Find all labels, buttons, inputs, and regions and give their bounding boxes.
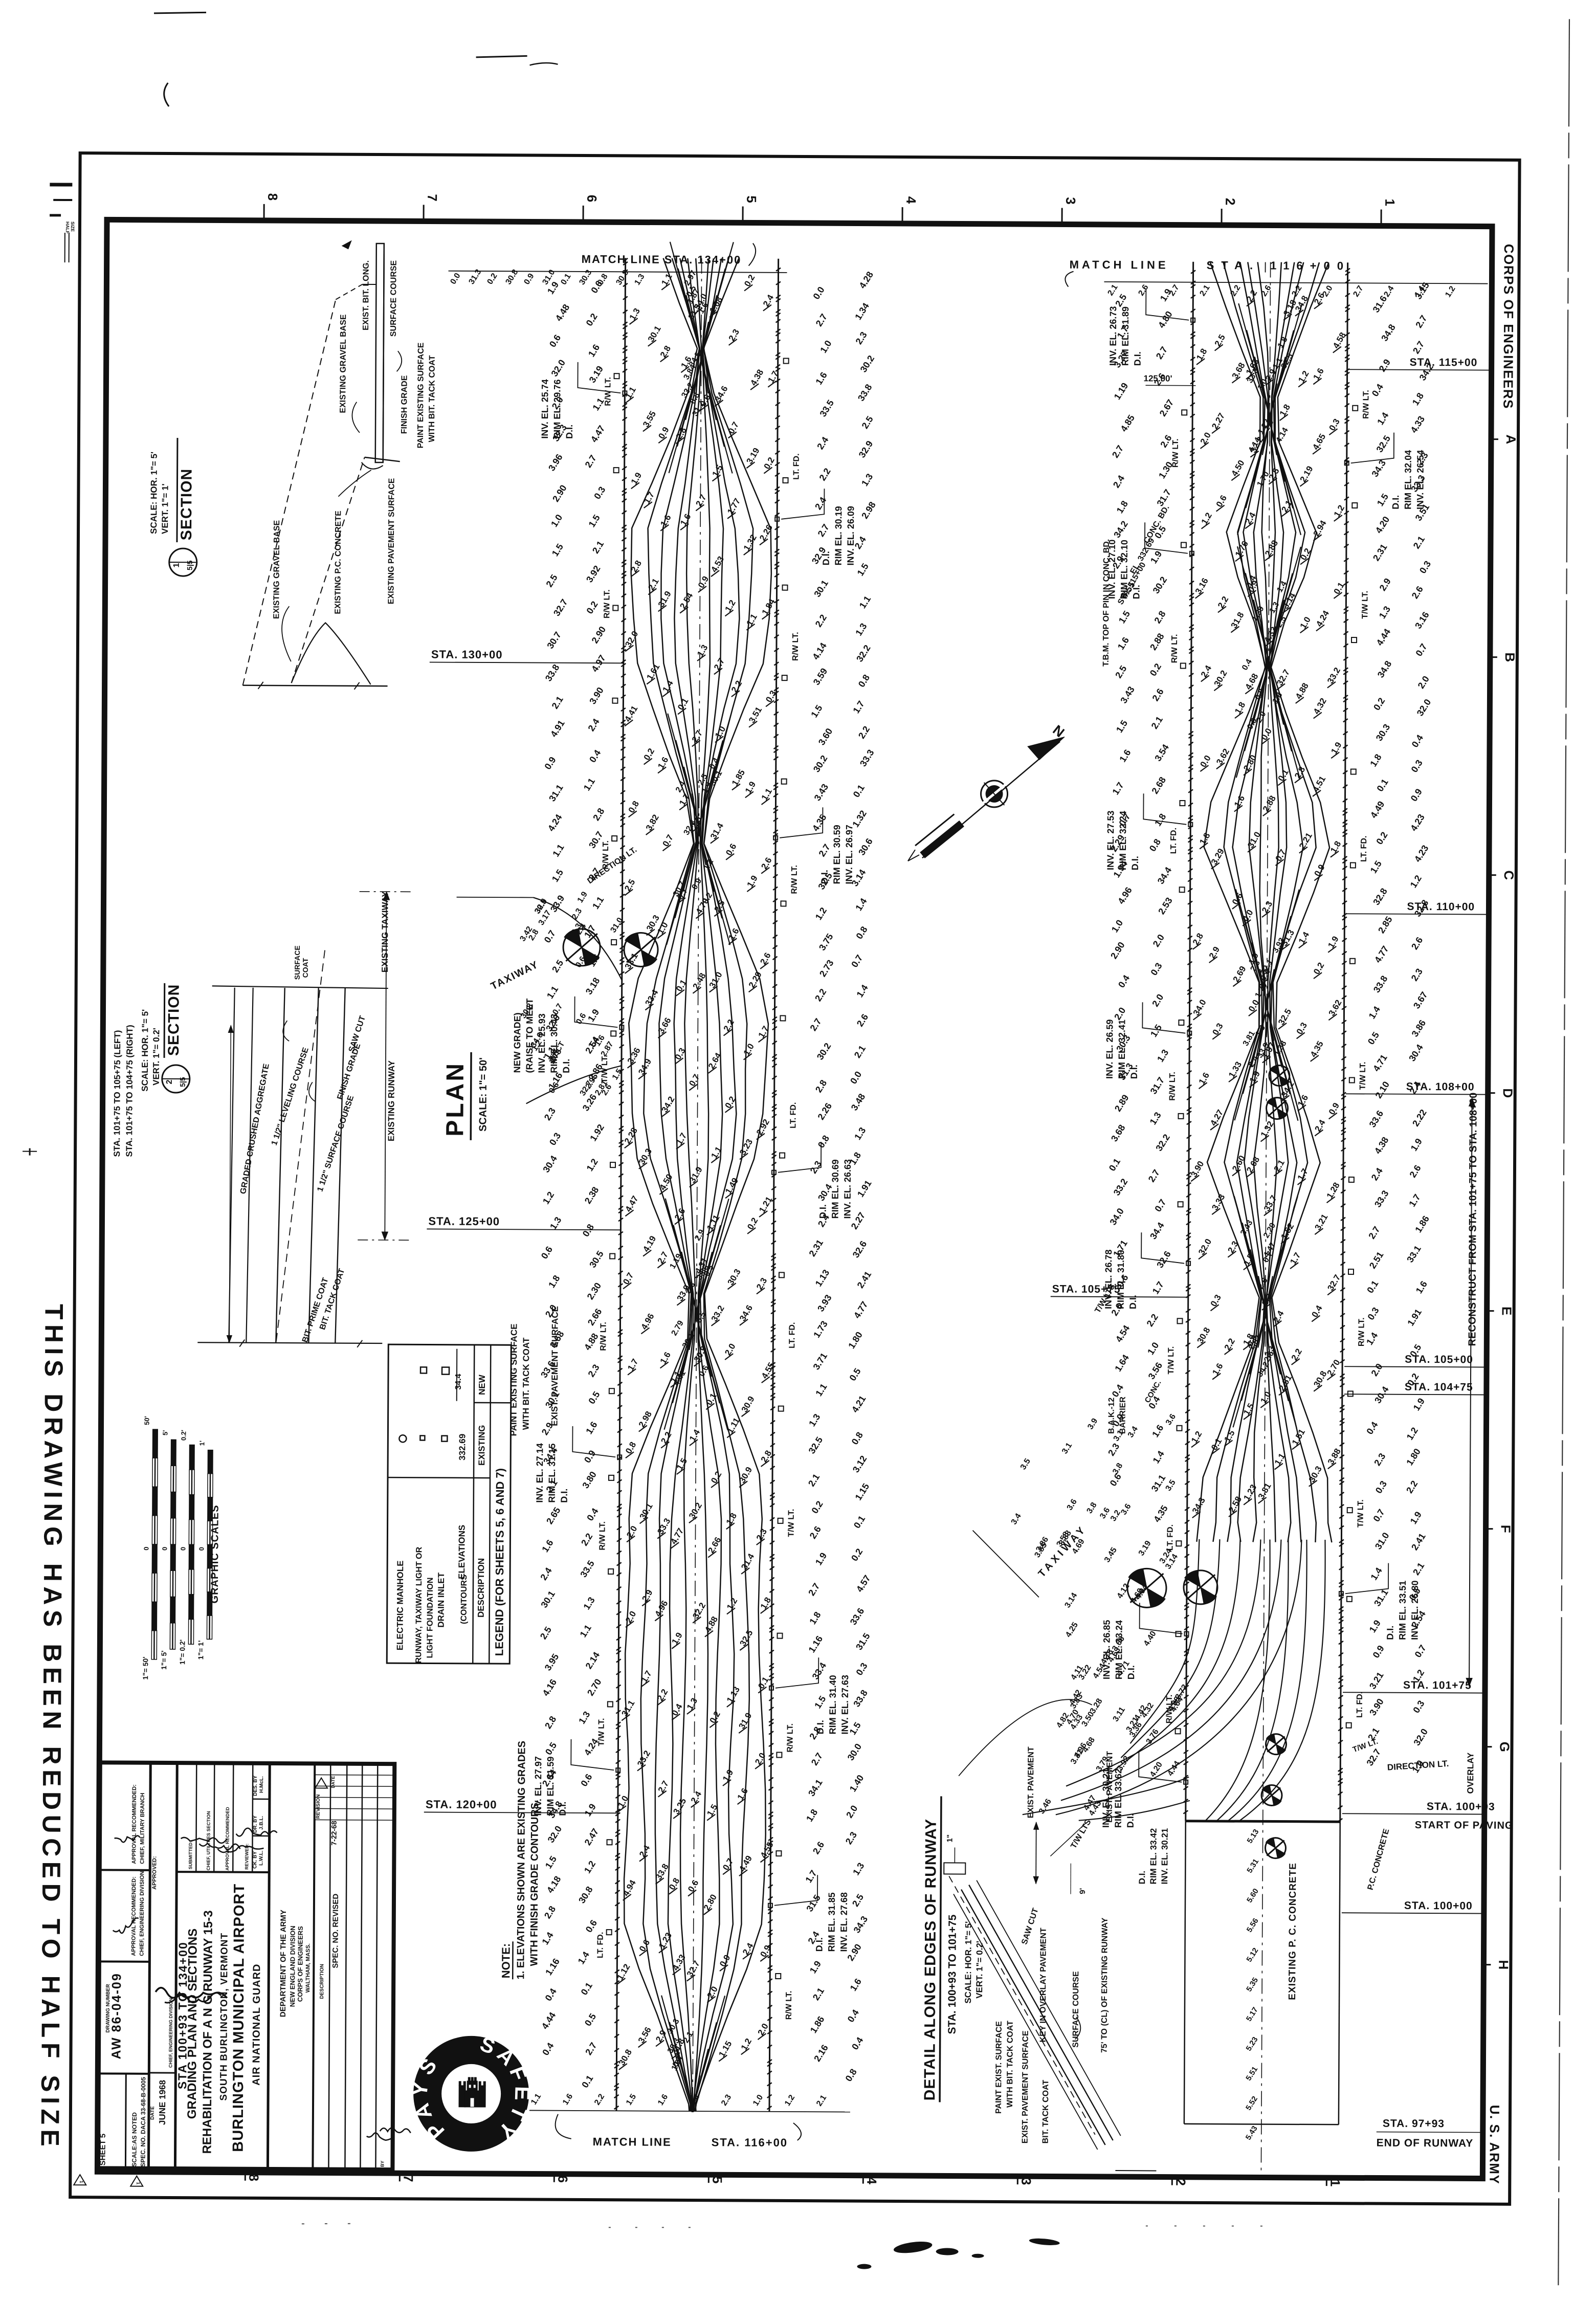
- svg-text:D: D: [1500, 1088, 1516, 1098]
- svg-text:2: 2: [165, 1079, 174, 1084]
- svg-text:DRAIN INLET: DRAIN INLET: [436, 1572, 447, 1627]
- svg-text:VERT. 1"= 0.2': VERT. 1"= 0.2': [974, 1941, 985, 1999]
- svg-text:(RAISE TO MEET: (RAISE TO MEET: [524, 999, 535, 1073]
- svg-text:EXISTING: EXISTING: [477, 1425, 486, 1466]
- svg-text:RIM EL. 33.24: RIM EL. 33.24: [1114, 1620, 1124, 1679]
- svg-text:4: 4: [864, 2177, 879, 2184]
- svg-text:RIM EL. 31.80: RIM EL. 31.80: [1116, 1250, 1126, 1309]
- svg-text:WITH FINISH GRADE CONTOURS.: WITH FINISH GRADE CONTOURS.: [528, 1800, 541, 1966]
- svg-text:R/W LT.: R/W LT.: [599, 1322, 608, 1351]
- svg-text:STA. 115+00: STA. 115+00: [1410, 357, 1478, 369]
- svg-text:SIZE: SIZE: [70, 222, 75, 232]
- svg-text:7: 7: [425, 194, 440, 202]
- svg-text:INV. EL. 26.09: INV. EL. 26.09: [846, 506, 856, 566]
- svg-text:DATE: DATE: [150, 2106, 156, 2120]
- svg-text:T/W LT.: T/W LT.: [1357, 1499, 1365, 1528]
- svg-text:REVISION: REVISION: [316, 1795, 321, 1819]
- svg-text:75' TO (CL) OF EXISTING RUNWAY: 75' TO (CL) OF EXISTING RUNWAY: [1100, 1917, 1110, 2053]
- svg-text:0: 0: [142, 1547, 150, 1551]
- svg-text:6: 6: [555, 2175, 570, 2183]
- svg-text:SCALE: 1"= 50': SCALE: 1"= 50': [477, 1057, 489, 1132]
- svg-text:COAT: COAT: [301, 958, 309, 978]
- svg-text:RIM EL. 31.15: RIM EL. 31.15: [547, 1444, 558, 1503]
- svg-text:0: 0: [179, 1547, 187, 1551]
- svg-text:D.I.: D.I.: [1390, 495, 1401, 510]
- svg-text:EXISTING P.C. CONCRETE: EXISTING P.C. CONCRETE: [334, 511, 343, 614]
- svg-text:RIM EL. 32.24: RIM EL. 32.24: [1118, 811, 1128, 870]
- svg-text:34.4: 34.4: [454, 1374, 463, 1389]
- svg-text:MATCH LINE: MATCH LINE: [1070, 258, 1169, 272]
- svg-text:RUNWAY, TAXIWAY LIGHT OR: RUNWAY, TAXIWAY LIGHT OR: [414, 1546, 424, 1663]
- svg-text:7: 7: [401, 2175, 416, 2182]
- svg-text:STA. 116+00: STA. 116+00: [1207, 259, 1351, 272]
- svg-text:2: 2: [1223, 198, 1238, 206]
- svg-text:SURFACE COURSE: SURFACE COURSE: [389, 260, 398, 337]
- svg-text:D.I.: D.I.: [1133, 351, 1143, 366]
- svg-text:0: 0: [197, 1547, 205, 1551]
- svg-text:EXISTING GRAVEL BASE: EXISTING GRAVEL BASE: [272, 520, 281, 619]
- svg-text:LT. FD.: LT. FD.: [1356, 1692, 1364, 1718]
- svg-text:8: 8: [246, 2174, 261, 2182]
- svg-text:D.I.: D.I.: [564, 425, 574, 439]
- svg-text:D.I.: D.I.: [561, 1059, 571, 1073]
- svg-text:R/W LT.: R/W LT.: [786, 1723, 794, 1753]
- svg-text:5': 5': [161, 1430, 169, 1435]
- svg-text:SUBMITTED:: SUBMITTED:: [188, 1841, 193, 1870]
- svg-text:INV. EL. 27.68: INV. EL. 27.68: [838, 1892, 849, 1952]
- svg-text:INV. EL. 25.74: INV. EL. 25.74: [540, 379, 550, 439]
- svg-text:SHEET 5: SHEET 5: [98, 2134, 107, 2166]
- svg-text:EXISTING TAXIWAY: EXISTING TAXIWAY: [380, 891, 390, 972]
- svg-text:BY: BY: [380, 2161, 385, 2167]
- svg-text:D.I.: D.I.: [1125, 1813, 1136, 1828]
- svg-text:1": 1": [946, 1834, 955, 1843]
- svg-text:SECTION: SECTION: [165, 984, 183, 1056]
- svg-text:B: B: [1502, 652, 1518, 662]
- svg-text:BIT. TACK COAT: BIT. TACK COAT: [1041, 2079, 1051, 2143]
- svg-text:D.I.: D.I.: [1130, 856, 1140, 870]
- svg-text:RIM EL. 31.85: RIM EL. 31.85: [826, 1892, 837, 1952]
- svg-text:INV. EL. 26.59: INV. EL. 26.59: [1104, 1020, 1115, 1079]
- svg-text:CHIEF, ENGINEERING DIVISION: CHIEF, ENGINEERING DIVISION: [139, 1871, 145, 1956]
- svg-text:VERT. 1"= 0.2': VERT. 1"= 0.2': [151, 1028, 162, 1086]
- svg-text:RIM EL. 30.43: RIM EL. 30.43: [549, 1014, 560, 1073]
- svg-text:INV. EL. 27.53: INV. EL. 27.53: [1105, 811, 1116, 871]
- svg-text:ELECTRIC MANHOLE: ELECTRIC MANHOLE: [395, 1560, 405, 1650]
- svg-text:INV. EL. 26.73: INV. EL. 26.73: [1108, 306, 1119, 366]
- svg-text:D.I.: D.I.: [1137, 1871, 1147, 1885]
- svg-text:STA. 105+00: STA. 105+00: [1405, 1354, 1473, 1366]
- svg-text:NEW GRADE): NEW GRADE): [512, 1012, 523, 1073]
- svg-text:SCALE:AS NOTED: SCALE:AS NOTED: [130, 2112, 138, 2167]
- svg-text:8: 8: [265, 193, 280, 201]
- svg-text:R/W LT.: R/W LT.: [1168, 1072, 1177, 1101]
- svg-text:WITH BIT. TACK COAT: WITH BIT. TACK COAT: [1006, 2021, 1015, 2108]
- svg-text:D.I.: D.I.: [1385, 1626, 1395, 1640]
- svg-text:332.69: 332.69: [457, 1434, 467, 1460]
- svg-text:OVERLAY: OVERLAY: [1466, 1752, 1475, 1794]
- svg-text:4: 4: [903, 196, 919, 204]
- svg-text:CK. BY: CK. BY: [252, 1851, 258, 1869]
- svg-text:T/W LT.: T/W LT.: [1361, 591, 1369, 619]
- svg-text:AIR NATIONAL GUARD: AIR NATIONAL GUARD: [251, 1963, 262, 2085]
- svg-text:DESCRIPTION: DESCRIPTION: [476, 1558, 486, 1618]
- svg-text:EXIST. PAVEMENT: EXIST. PAVEMENT: [1105, 1751, 1115, 1823]
- svg-text:FINISH GRADE: FINISH GRADE: [400, 375, 409, 434]
- svg-text:MATCH LINE: MATCH LINE: [593, 2135, 672, 2149]
- svg-text:INV. EL. 27.97: INV. EL. 27.97: [533, 1756, 544, 1816]
- svg-text:INV. EL. 26.85: INV. EL. 26.85: [1101, 1620, 1112, 1680]
- svg-text:STA. 100+93 TO 101+75: STA. 100+93 TO 101+75: [946, 1914, 959, 2034]
- svg-text:APPROVED:: APPROVED:: [151, 1856, 158, 1889]
- svg-text:D.I.: D.I.: [1126, 1665, 1136, 1679]
- svg-text:A: A: [1503, 434, 1519, 444]
- svg-text:EXISTING P. C. CONCRETE: EXISTING P. C. CONCRETE: [1287, 1863, 1298, 2000]
- svg-text:INV. EL. 30.21: INV. EL. 30.21: [1160, 1828, 1170, 1885]
- svg-text:RIM EL. 32.04: RIM EL. 32.04: [1403, 450, 1413, 510]
- svg-text:INV. EL. 26.63: INV. EL. 26.63: [843, 1159, 853, 1219]
- svg-text:0.2': 0.2': [180, 1430, 187, 1441]
- svg-text:1: 1: [136, 2182, 141, 2184]
- svg-text:AW 86-04-09: AW 86-04-09: [109, 1973, 124, 2059]
- svg-text:SCALE: HOR. 1"= 5': SCALE: HOR. 1"= 5': [140, 1009, 150, 1092]
- svg-text:SCALE: HOR. 1"= 5': SCALE: HOR. 1"= 5': [963, 1921, 973, 2004]
- svg-text:D.I.: D.I.: [819, 870, 830, 884]
- svg-text:STA. 100+93: STA. 100+93: [1427, 1801, 1495, 1813]
- svg-text:CHIEF, ENGINEERING DIVISION: CHIEF, ENGINEERING DIVISION: [168, 1998, 173, 2068]
- svg-text:5: 5: [710, 2176, 725, 2184]
- svg-text:STA. 101+75 TO 104+75 (RIGHT): STA. 101+75 TO 104+75 (RIGHT): [124, 1025, 135, 1157]
- svg-text:CHIEF, MILITARY BRANCH: CHIEF, MILITARY BRANCH: [139, 1793, 146, 1864]
- svg-text:LT. FD.: LT. FD.: [788, 1322, 796, 1348]
- svg-text:EXIST. PAVEMENT: EXIST. PAVEMENT: [1027, 1746, 1036, 1818]
- svg-text:1: 1: [1327, 2179, 1343, 2187]
- svg-text:LT. FD.: LT. FD.: [1166, 1524, 1174, 1551]
- svg-text:END OF RUNWAY: END OF RUNWAY: [1377, 2137, 1474, 2150]
- svg-text:NOTE:: NOTE:: [499, 1943, 512, 1979]
- svg-text:START OF PAVING: START OF PAVING: [1415, 1820, 1514, 1831]
- svg-text:STA. 104+75: STA. 104+75: [1405, 1381, 1473, 1393]
- svg-text:PAINT EXISTING SURFACE: PAINT EXISTING SURFACE: [508, 1323, 519, 1436]
- svg-text:NEW ENGLAND DIVISION: NEW ENGLAND DIVISION: [289, 1925, 297, 2007]
- svg-text:RIM EL. 31.40: RIM EL. 31.40: [828, 1675, 838, 1734]
- svg-text:EXISTING RUNWAY: EXISTING RUNWAY: [386, 1060, 396, 1141]
- svg-text:R/W LT.: R/W LT.: [785, 1991, 793, 2020]
- svg-text:STA. 110+00: STA. 110+00: [1407, 901, 1475, 913]
- svg-text:APPROVAL RECOMMENDED:: APPROVAL RECOMMENDED:: [131, 1784, 138, 1864]
- svg-text:EXIST. PAVEMENT SURFACE: EXIST. PAVEMENT SURFACE: [1021, 2030, 1030, 2143]
- svg-text:D.I.: D.I.: [815, 1720, 826, 1734]
- svg-text:WITH BIT. TACK COAT: WITH BIT. TACK COAT: [521, 1337, 531, 1430]
- svg-text:LIGHT FOUNDATION: LIGHT FOUNDATION: [426, 1578, 435, 1658]
- svg-text:R/W LT.: R/W LT.: [1171, 438, 1180, 468]
- svg-text:RIM EL. 33.42: RIM EL. 33.42: [1148, 1828, 1159, 1885]
- svg-text:WALTHAM, MASS.: WALTHAM, MASS.: [305, 1943, 311, 1993]
- svg-text:1"= 1': 1"= 1': [196, 1641, 205, 1660]
- svg-text:LT. FD.: LT. FD.: [792, 453, 801, 479]
- svg-text:SECTION: SECTION: [178, 469, 195, 541]
- svg-text:INV. EL. 26.54: INV. EL. 26.54: [1415, 450, 1426, 510]
- svg-text:PAINT EXIST. SURFACE: PAINT EXIST. SURFACE: [994, 2021, 1004, 2114]
- svg-text:RIM EL. 33.51: RIM EL. 33.51: [1397, 1581, 1408, 1640]
- svg-text:R/W LT.: R/W LT.: [603, 589, 611, 618]
- svg-text:5|5: 5|5: [179, 1077, 187, 1087]
- svg-text:RECONSTRUCT FROM STA. 101+75 T: RECONSTRUCT FROM STA. 101+75 TO STA. 108…: [1467, 1093, 1479, 1346]
- svg-text:L.W.L.: L.W.L.: [258, 1850, 264, 1866]
- svg-text:B.A.K.-12: B.A.K.-12: [1107, 1398, 1116, 1434]
- svg-text:LT. FD.: LT. FD.: [596, 1932, 605, 1958]
- svg-text:EXISTING PAVEMENT SURFACE: EXISTING PAVEMENT SURFACE: [387, 478, 396, 604]
- svg-text:INV. EL. 26.80: INV. EL. 26.80: [1409, 1580, 1420, 1640]
- svg-text:VERT. 1"= 1': VERT. 1"= 1': [160, 483, 170, 534]
- svg-text:J.B.L.: J.B.L.: [259, 1816, 264, 1830]
- svg-text:SPEC. NO. REVISED: SPEC. NO. REVISED: [331, 1894, 340, 1968]
- svg-text:PLAN: PLAN: [441, 1061, 469, 1137]
- svg-text:STA. 116+00: STA. 116+00: [712, 2136, 788, 2149]
- svg-text:1"= 0.2': 1"= 0.2': [178, 1640, 186, 1665]
- svg-text:SCALE: HOR. 1"= 5': SCALE: HOR. 1"= 5': [149, 452, 159, 534]
- svg-text:1. ELEVATIONS SHOWN ARE EXISTI: 1. ELEVATIONS SHOWN ARE EXISTING GRADES: [515, 1741, 527, 1979]
- svg-text:STA. 97+93: STA. 97+93: [1383, 2118, 1445, 2130]
- svg-text:H: H: [1496, 1960, 1511, 1969]
- svg-text:INV. EL. 27.63: INV. EL. 27.63: [840, 1675, 851, 1735]
- svg-text:5|5: 5|5: [186, 560, 194, 570]
- svg-text:SURFACE: SURFACE: [293, 945, 301, 980]
- svg-text:T/W LT.: T/W LT.: [1167, 1346, 1176, 1375]
- svg-text:MATCH LINE STA. 134+00: MATCH LINE STA. 134+00: [582, 253, 742, 267]
- svg-text:1: 1: [172, 563, 181, 567]
- svg-text:BURLINGTON MUNICIPAL AIRPORT: BURLINGTON MUNICIPAL AIRPORT: [230, 1884, 248, 2152]
- svg-text:STA. 120+00: STA. 120+00: [426, 1798, 497, 1811]
- svg-text:R/W LT.: R/W LT.: [1170, 634, 1179, 663]
- svg-text:0: 0: [161, 1547, 168, 1551]
- svg-text:R/W LT.: R/W LT.: [791, 632, 800, 661]
- svg-text:2: 2: [1173, 2178, 1188, 2186]
- svg-text:R/W LT.: R/W LT.: [790, 865, 799, 894]
- svg-text:RIM EL. 31.89: RIM EL. 31.89: [1120, 306, 1131, 366]
- svg-text:INV. EL. 25.93: INV. EL. 25.93: [537, 1013, 547, 1073]
- svg-text:STA. 125+00: STA. 125+00: [428, 1214, 500, 1228]
- svg-text:U. S. ARMY: U. S. ARMY: [1487, 2105, 1502, 2185]
- svg-text:DR. BY: DR. BY: [253, 1816, 258, 1833]
- svg-text:D.I.: D.I.: [814, 1937, 824, 1952]
- svg-text:H.McL.: H.McL.: [259, 1776, 264, 1793]
- svg-text:9': 9': [1078, 1888, 1087, 1894]
- svg-text:1': 1': [198, 1441, 206, 1446]
- svg-text:SURFACE COURSE: SURFACE COURSE: [1072, 1971, 1081, 2048]
- svg-text:STA. 101+75 TO 105+75 (LEFT): STA. 101+75 TO 105+75 (LEFT): [112, 1030, 122, 1157]
- svg-text:BARRIER: BARRIER: [1118, 1397, 1127, 1434]
- svg-text:WITH BIT. TACK COAT: WITH BIT. TACK COAT: [428, 355, 437, 442]
- svg-text:RIM EL. 33.62: RIM EL. 33.62: [1113, 1768, 1124, 1828]
- svg-text:INV. EL. 26.78: INV. EL. 26.78: [1103, 1250, 1114, 1310]
- svg-text:CORPS OF ENGINEERS: CORPS OF ENGINEERS: [1500, 244, 1517, 409]
- svg-text:ELEVATIONS: ELEVATIONS: [457, 1525, 467, 1579]
- svg-text:R/W LT.: R/W LT.: [598, 1521, 607, 1551]
- svg-text:DEPARTMENT OF THE ARMY: DEPARTMENT OF THE ARMY: [279, 1910, 288, 2017]
- svg-text:STA. 108+00: STA. 108+00: [1406, 1081, 1475, 1093]
- svg-text:D.I.: D.I.: [1128, 1295, 1138, 1309]
- svg-text:RIM EL. 29.76: RIM EL. 29.76: [552, 380, 563, 439]
- svg-text:50': 50': [143, 1416, 151, 1425]
- svg-text:STA. 101+75: STA. 101+75: [1403, 1679, 1472, 1692]
- svg-text:CORPS OF ENGINEERS: CORPS OF ENGINEERS: [296, 1926, 304, 2002]
- svg-text:5: 5: [744, 195, 759, 203]
- svg-text:D.I.: D.I.: [1129, 1065, 1139, 1079]
- svg-text:T/W LT.: T/W LT.: [787, 1509, 795, 1537]
- svg-text:REHABILITATION OF A N G RUNWAY: REHABILITATION OF A N G RUNWAY 15-3: [201, 1910, 215, 2154]
- svg-text:EXIST. PAVEMENT SURFACE: EXIST. PAVEMENT SURFACE: [550, 1306, 560, 1426]
- svg-text:STA. 130+00: STA. 130+00: [431, 648, 503, 661]
- svg-text:R/W LT.: R/W LT.: [1362, 390, 1370, 419]
- svg-text:D.I.: D.I.: [558, 1802, 568, 1816]
- svg-text:T/W LT.: T/W LT.: [1359, 1062, 1367, 1090]
- svg-text:RIM EL. 30.19: RIM EL. 30.19: [833, 506, 844, 565]
- svg-text:RIM EL. 30.69: RIM EL. 30.69: [830, 1159, 841, 1219]
- svg-text:RIM EL. 30.59: RIM EL. 30.59: [832, 825, 843, 884]
- svg-text:(CONTOURS: (CONTOURS: [460, 1575, 469, 1624]
- svg-text:3: 3: [1018, 2178, 1034, 2185]
- svg-text:D.I.: D.I.: [818, 1204, 828, 1219]
- svg-text:6: 6: [584, 195, 600, 203]
- svg-text:APPROVAL RECOMMENDED: APPROVAL RECOMMENDED: [225, 1807, 230, 1871]
- svg-text:D.I.: D.I.: [821, 551, 831, 565]
- svg-text:C: C: [1501, 870, 1517, 880]
- svg-text:APPROVAL RECOMMENDED:: APPROVAL RECOMMENDED:: [130, 1876, 137, 1956]
- svg-text:E: E: [1499, 1307, 1515, 1315]
- svg-text:7-22-68: 7-22-68: [330, 1821, 338, 1846]
- svg-text:1: 1: [1382, 198, 1398, 206]
- svg-text:STA 100+93 TO 134+00: STA 100+93 TO 134+00: [175, 1941, 189, 2089]
- svg-text:RIM EL. 31.59: RIM EL. 31.59: [545, 1757, 556, 1816]
- svg-text:F: F: [1498, 1525, 1514, 1533]
- svg-text:LT. FD.: LT. FD.: [1169, 828, 1178, 854]
- svg-text:LEGEND (FOR SHEETS 5, 6 AND 7: LEGEND (FOR SHEETS 5, 6 AND 7): [493, 1468, 506, 1656]
- svg-text:D.I.: D.I.: [559, 1489, 569, 1503]
- svg-text:DES. BY: DES. BY: [253, 1775, 258, 1796]
- svg-text:1: 1: [79, 2181, 84, 2183]
- svg-text:NEW: NEW: [477, 1374, 487, 1395]
- svg-text:SPEC. NO. DACA 33-68-B-0005: SPEC. NO. DACA 33-68-B-0005: [139, 2077, 147, 2167]
- svg-text:LT. FD.: LT. FD.: [1360, 836, 1368, 862]
- svg-text:THIS DRAWING HAS BEEN REDUCED: THIS DRAWING HAS BEEN REDUCED TO HALF SI…: [36, 1304, 69, 2152]
- svg-text:1"= 5': 1"= 5': [160, 1650, 168, 1670]
- svg-text:EXIST. BIT. LONG.: EXIST. BIT. LONG.: [362, 260, 371, 330]
- svg-text:125.00': 125.00': [1143, 373, 1172, 383]
- svg-text:SOUTH BURLINGTON, VERMONT: SOUTH BURLINGTON, VERMONT: [218, 1933, 230, 2101]
- svg-text:G: G: [1497, 1742, 1512, 1752]
- svg-text:1"= 50': 1"= 50': [141, 1656, 149, 1679]
- svg-text:STA. 100+00: STA. 100+00: [1404, 1900, 1473, 1912]
- svg-text:EXISTING GRAVEL BASE: EXISTING GRAVEL BASE: [339, 314, 348, 413]
- svg-text:RIM EL. 32.41: RIM EL. 32.41: [1117, 1020, 1127, 1079]
- svg-text:LT. FD.: LT. FD.: [789, 1102, 797, 1128]
- svg-text:INV. EL. 27.14: INV. EL. 27.14: [535, 1443, 545, 1503]
- svg-text:KEY IN OVERLAY PAVEMENT: KEY IN OVERLAY PAVEMENT: [1039, 1928, 1048, 2042]
- svg-text:JUNE 1968: JUNE 1968: [158, 2080, 167, 2125]
- svg-text:DESCRIPTION: DESCRIPTION: [319, 1964, 325, 1999]
- svg-text:T.B.M. TOP OF PIN IN CONC. BD.: T.B.M. TOP OF PIN IN CONC. BD.: [1102, 539, 1111, 667]
- svg-text:DETAIL ALONG EDGES OF RUNWAY: DETAIL ALONG EDGES OF RUNWAY: [921, 1819, 940, 2101]
- svg-text:3: 3: [1063, 197, 1078, 205]
- svg-text:HALF: HALF: [65, 222, 70, 234]
- svg-text:DATE: DATE: [330, 1776, 336, 1788]
- svg-text:INV. EL. 26.97: INV. EL. 26.97: [844, 825, 855, 884]
- svg-text:PAINT EXISTING SURFACE: PAINT EXISTING SURFACE: [416, 342, 426, 448]
